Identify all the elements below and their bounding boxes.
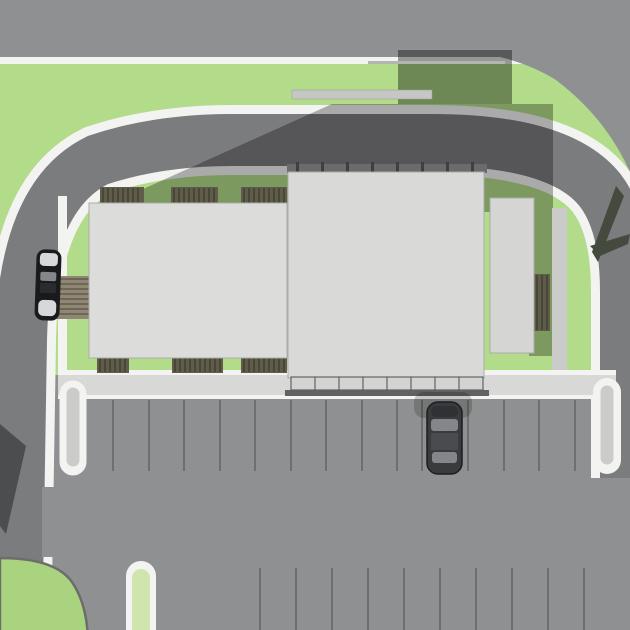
canopy-panel [339,377,363,390]
parked-car-hood [431,406,458,417]
drive-up-car-trunk [40,253,58,267]
canopy-panel [435,377,459,390]
canopy-panel [387,377,411,390]
roof-joist-tick [346,162,349,173]
roof-joist-tick [321,162,324,173]
canopy-panel [315,377,339,390]
canopy-panel [291,377,315,390]
left-building-roof [89,203,287,358]
east-walkway [552,208,567,374]
parked-car-windshield [431,419,458,431]
parking-entrance-west [42,487,56,557]
roof-joist-tick [421,162,424,173]
street-lane-line [368,61,505,64]
entry-canopy-panels [291,377,483,390]
canopy-panel [363,377,387,390]
canopy-panel [411,377,435,390]
parked-car-rear-glass [432,452,457,463]
roof-joist-tick [446,162,449,173]
parked-car-roof [431,433,458,450]
drive-up-car [35,250,61,321]
drive-up-car-rear-glass [40,272,56,282]
canopy-panel [459,377,483,390]
center-building-roof [288,172,484,378]
roof-joist-tick [371,162,374,173]
site-plan-rendering [0,0,630,630]
right-building-roof [490,198,534,353]
roof-joist-tick [471,162,474,173]
roof-joist-tick [296,162,299,173]
drive-up-car-roof [40,283,56,294]
parking-entrance-east [586,478,630,630]
drive-up-car-hood [38,300,57,317]
roof-joist-tick [396,162,399,173]
north-walkway-bar [292,90,432,99]
